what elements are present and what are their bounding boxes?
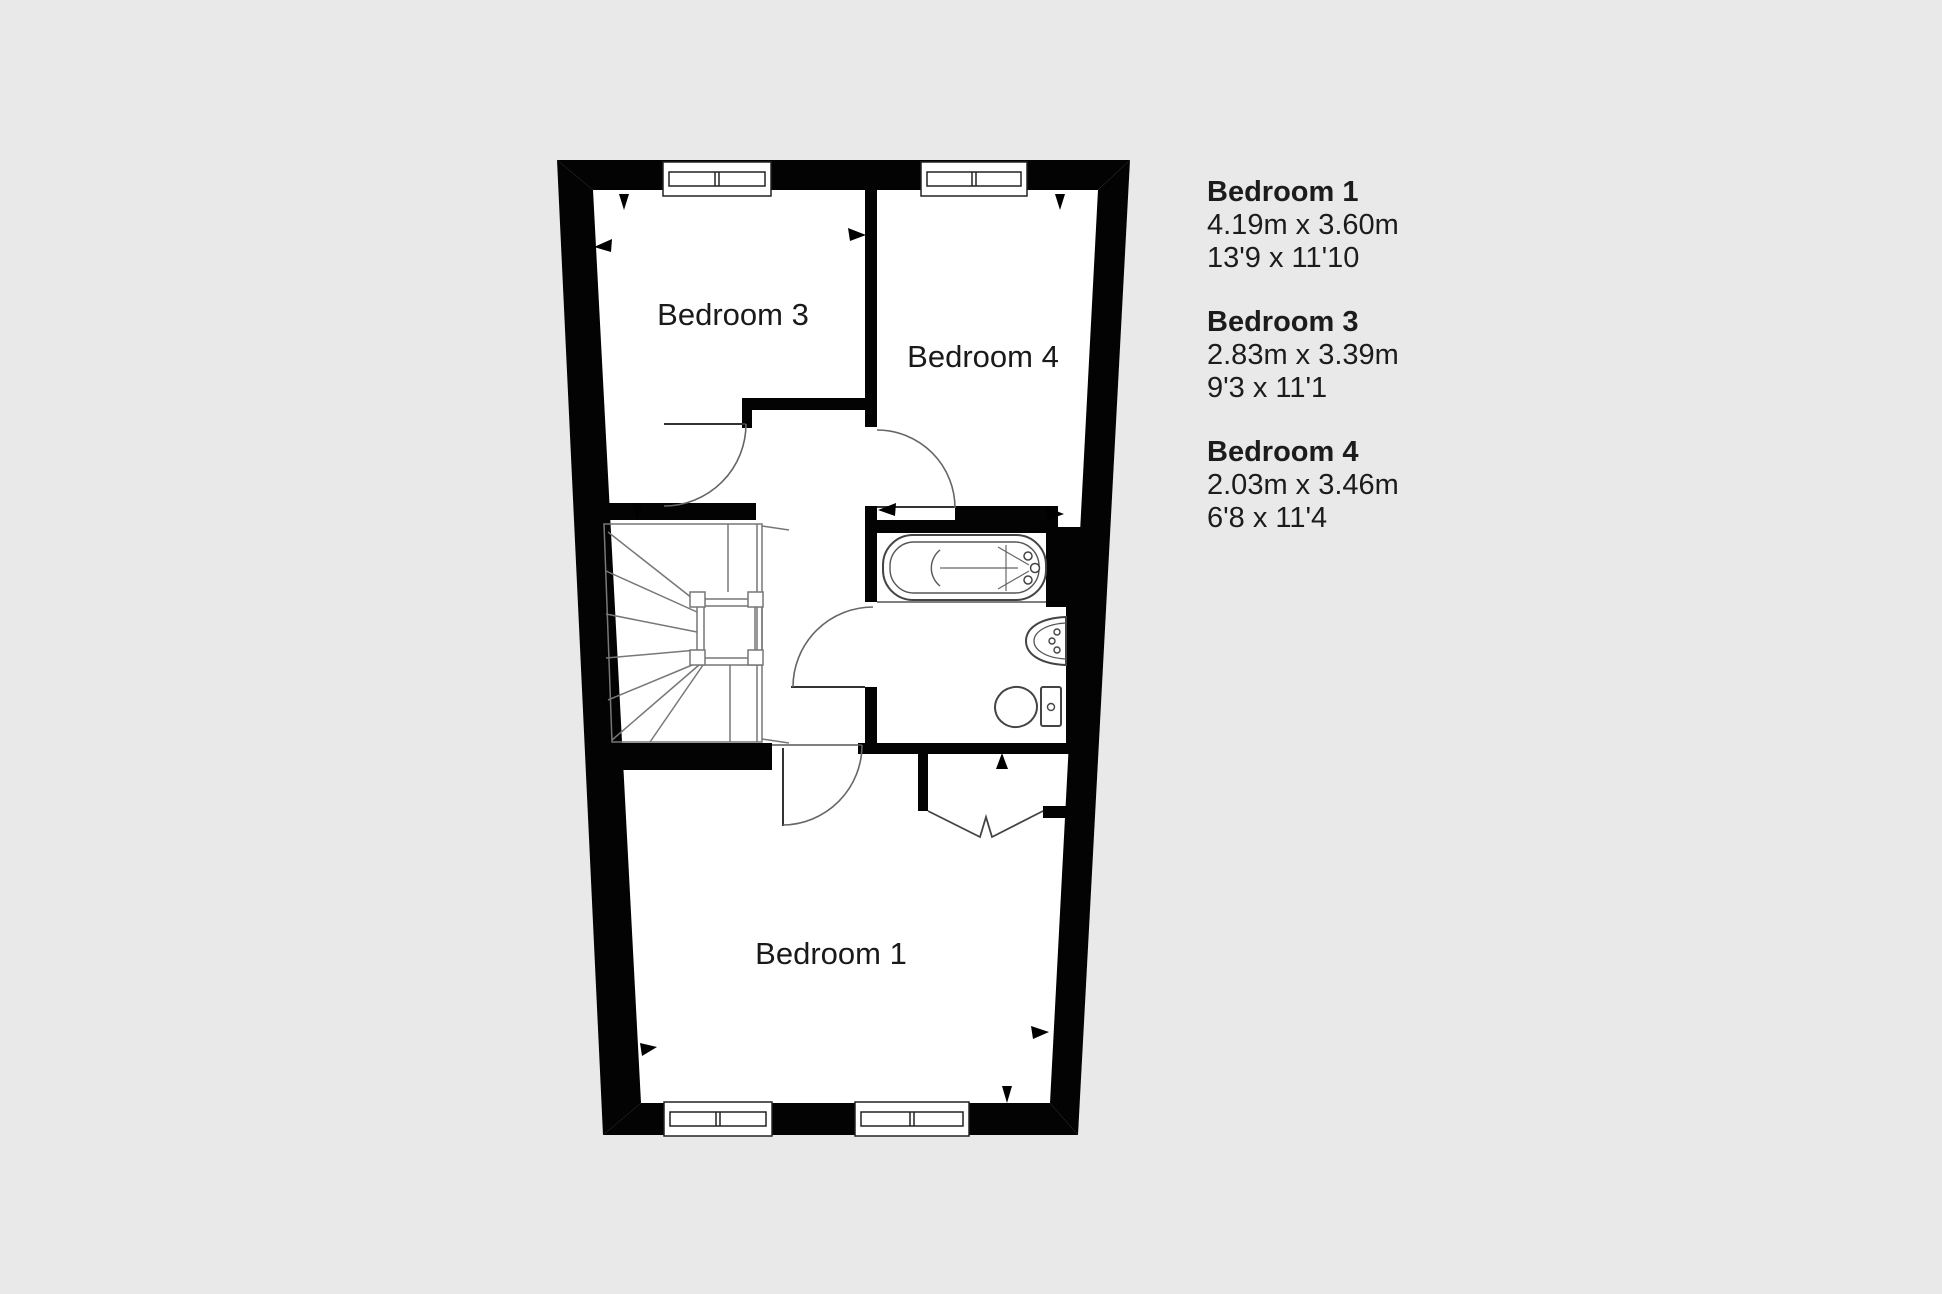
room-label-bedroom-3: Bedroom 3 [657,297,809,332]
floor-plan: Bedroom 3 Bedroom 4 Bedroom 1 [0,0,1942,1294]
bathtub [883,535,1046,600]
wall-bed4-bottom [955,506,1058,520]
wall-bed3-bottom [745,398,866,410]
floorplan-page: Bedroom 3 Bedroom 4 Bedroom 1 Bedroom 1 … [0,0,1942,1294]
wall-bath-top [866,520,1058,533]
wall-divider-bed3-bed4 [865,190,877,427]
wall-closet-left [918,747,928,811]
window-bedroom4-top [921,162,1027,196]
legend-entry-bedroom-3: Bedroom 3 2.83m x 3.39m 9'3 x 11'1 [1207,306,1399,405]
legend-metric-dimensions: 2.03m x 3.46m [1207,469,1399,502]
wall-tub-right-chunk [1046,527,1104,607]
legend-room-name: Bedroom 3 [1207,306,1399,339]
legend-imperial-dimensions: 9'3 x 11'1 [1207,372,1399,405]
legend-room-name: Bedroom 4 [1207,436,1399,469]
window-bedroom1-bottom-right [855,1102,969,1136]
wall-closet-stub [1043,806,1079,818]
legend-room-name: Bedroom 1 [1207,176,1399,209]
wall-bath-bottom [858,743,1070,754]
wall-bed1-top [606,743,772,770]
legend-entry-bedroom-4: Bedroom 4 2.03m x 3.46m 6'8 x 11'4 [1207,436,1399,535]
legend-metric-dimensions: 2.83m x 3.39m [1207,339,1399,372]
top-wall [557,160,1130,190]
legend-imperial-dimensions: 13'9 x 11'10 [1207,242,1399,275]
legend-metric-dimensions: 4.19m x 3.60m [1207,209,1399,242]
legend-imperial-dimensions: 6'8 x 11'4 [1207,502,1399,535]
room-dimensions-legend: Bedroom 1 4.19m x 3.60m 13'9 x 11'10 Bed… [1207,176,1399,566]
wall-bath-left-lower [865,687,877,747]
room-label-bedroom-4: Bedroom 4 [907,339,1059,374]
room-label-bedroom-1: Bedroom 1 [755,936,907,971]
wall-bath-right [1066,607,1096,753]
legend-entry-bedroom-1: Bedroom 1 4.19m x 3.60m 13'9 x 11'10 [1207,176,1399,275]
window-bedroom3-top [663,162,771,196]
window-bedroom1-bottom-left [664,1102,772,1136]
